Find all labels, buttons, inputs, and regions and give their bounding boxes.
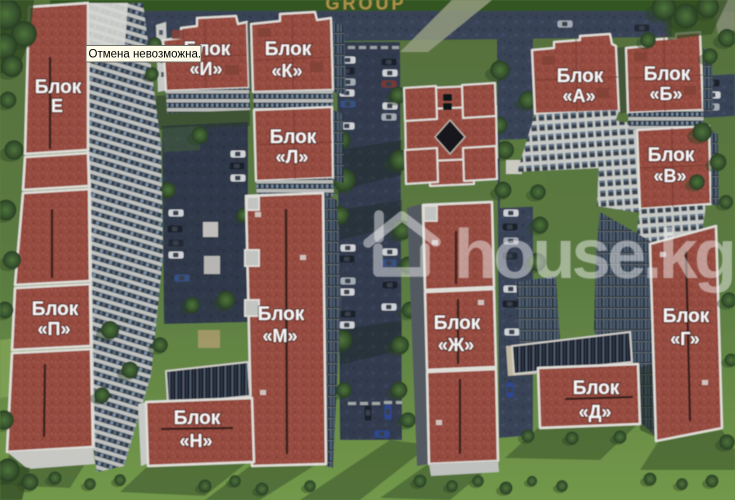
- svg-text:Отмена невозможна.: Отмена невозможна.: [89, 49, 202, 61]
